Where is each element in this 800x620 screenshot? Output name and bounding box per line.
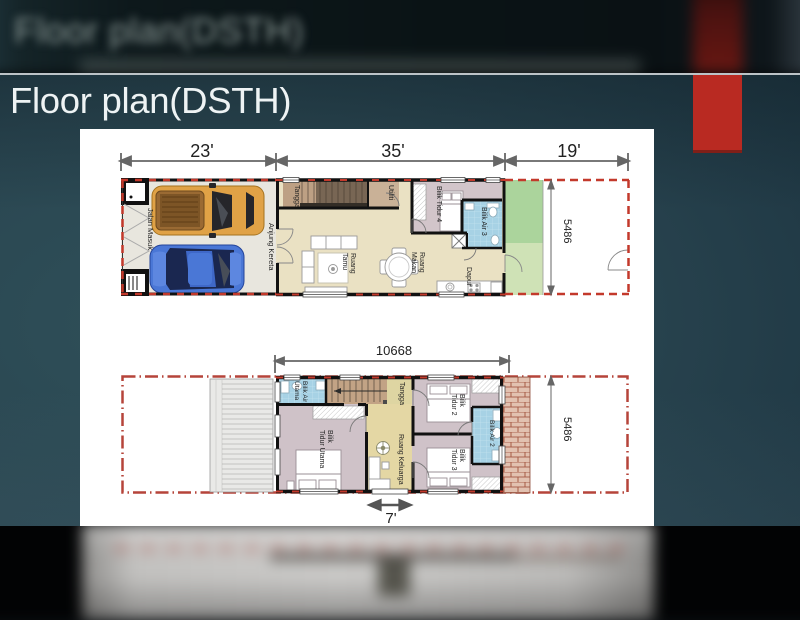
svg-text:10668: 10668 [376,343,412,358]
svg-text:23': 23' [190,141,213,161]
svg-text:Bilik AirUtama: Bilik AirUtama [293,381,308,403]
svg-text:Jalan Masuk: Jalan Masuk [146,208,155,250]
svg-text:Bilik Tidur 4: Bilik Tidur 4 [435,186,442,222]
svg-text:Bilik Air 3: Bilik Air 3 [480,207,487,236]
svg-text:35': 35' [381,141,404,161]
svg-text:7': 7' [385,510,396,526]
svg-text:Tangga: Tangga [293,185,300,208]
svg-text:5486: 5486 [561,219,573,243]
svg-text:Ruang Keluarga: Ruang Keluarga [397,434,404,485]
svg-text:RuangMakan: RuangMakan [410,252,425,273]
svg-text:19': 19' [557,141,580,161]
svg-text:Anjung Kereta: Anjung Kereta [267,223,276,271]
svg-text:Dapur: Dapur [465,267,472,287]
svg-text:Utiliti: Utiliti [387,185,394,201]
svg-text:Tangga: Tangga [398,382,405,405]
svg-text:5486: 5486 [561,417,573,441]
svg-text:Bilik Air 2: Bilik Air 2 [488,420,495,447]
